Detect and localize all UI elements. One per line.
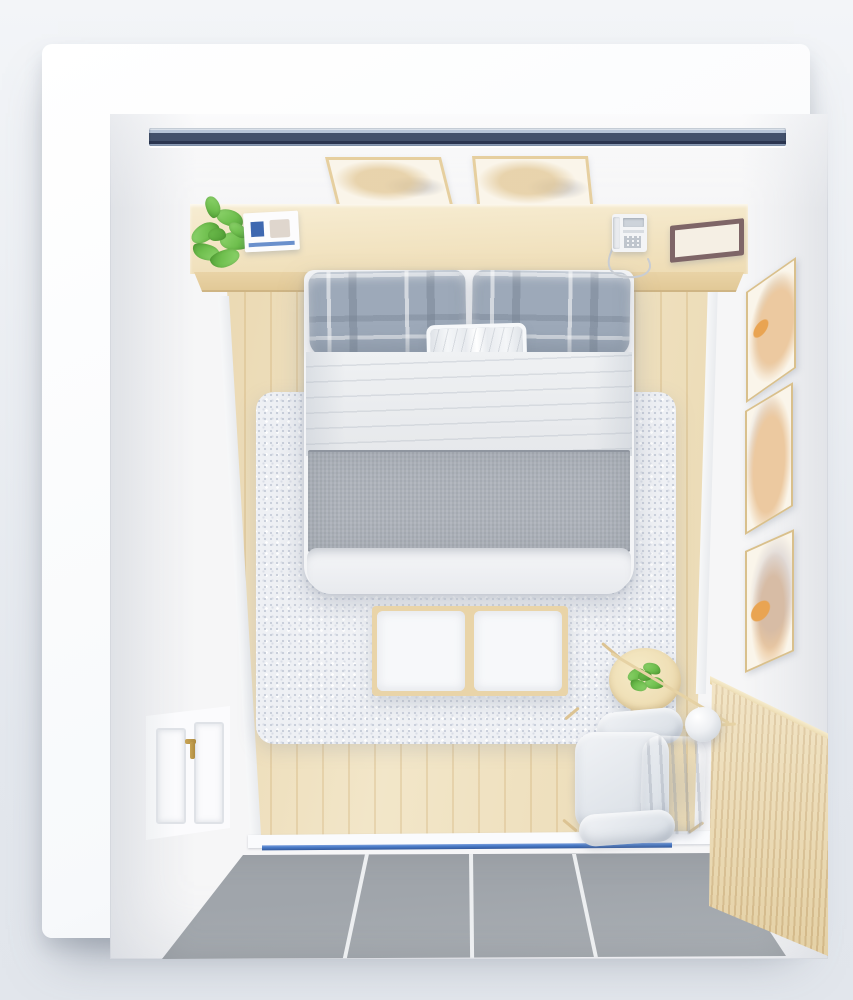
art-book — [243, 211, 300, 253]
door — [146, 706, 230, 840]
photo-card — [42, 44, 810, 938]
door-handle — [190, 742, 195, 759]
phone-screen — [623, 218, 644, 227]
grout-line — [343, 854, 369, 959]
bed-end-bench — [372, 606, 568, 696]
flat-picture-frame — [670, 218, 744, 263]
tile-floor — [160, 849, 790, 959]
door-panel — [156, 728, 186, 824]
duvet-foot — [307, 548, 631, 594]
phone-handset — [613, 217, 620, 249]
phone-keypad — [624, 236, 641, 248]
phone-button-row — [623, 230, 644, 233]
floor-lamp — [685, 707, 721, 742]
window — [149, 128, 786, 146]
grout-line — [572, 854, 598, 959]
bed-runner — [308, 450, 630, 552]
bench-cushion-left — [377, 611, 465, 691]
room — [110, 114, 828, 959]
leaf — [208, 228, 226, 241]
book-cover-image — [269, 219, 290, 238]
scene — [0, 0, 853, 1000]
chair-arm-bottom — [578, 809, 676, 848]
head-wall-art-left — [325, 157, 454, 209]
door-panel — [194, 722, 224, 824]
chair-leg — [564, 707, 580, 721]
telephone — [612, 214, 647, 252]
duvet — [306, 352, 632, 456]
book-stripe — [249, 241, 295, 247]
potted-plant — [188, 200, 252, 274]
book-label — [250, 221, 264, 237]
bench-cushion-right — [474, 611, 562, 691]
grout-line — [469, 852, 474, 959]
wall-art-3 — [745, 529, 794, 673]
